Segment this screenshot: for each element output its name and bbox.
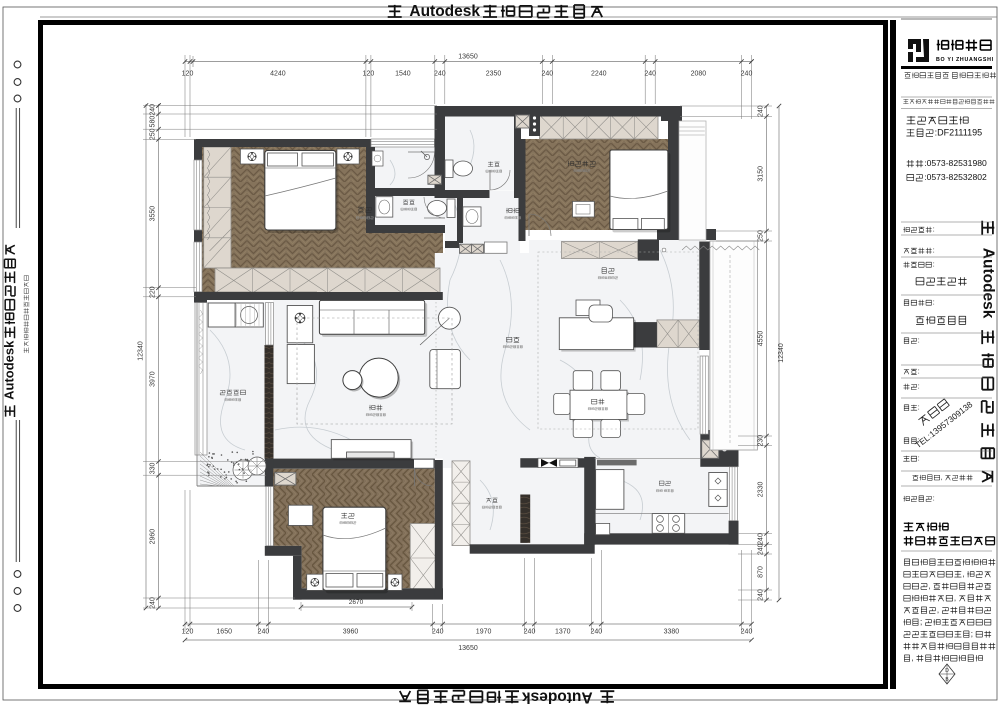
svg-text::: : (933, 227, 935, 234)
svg-text:240: 240 (590, 629, 602, 636)
svg-text:3970: 3970 (150, 371, 157, 387)
svg-text:3150: 3150 (758, 166, 765, 182)
svg-text::0573-82532802: :0573-82532802 (924, 172, 987, 182)
svg-text:120: 120 (363, 71, 375, 78)
svg-text:1370: 1370 (555, 629, 571, 636)
svg-text:240: 240 (758, 543, 765, 555)
svg-text:240: 240 (741, 71, 753, 78)
svg-text:12340: 12340 (138, 341, 145, 361)
svg-text:240: 240 (758, 533, 765, 545)
svg-text::: : (933, 300, 935, 307)
svg-text:240: 240 (434, 71, 446, 78)
svg-text:D: D (945, 668, 949, 674)
svg-text:BO YI ZHUANGSHI: BO YI ZHUANGSHI (936, 57, 994, 63)
svg-text::0573-82531980: :0573-82531980 (924, 158, 987, 168)
svg-text:3550: 3550 (150, 206, 157, 222)
svg-text:3380: 3380 (664, 629, 680, 636)
svg-text:2350: 2350 (486, 71, 502, 78)
svg-text:,: , (962, 570, 964, 579)
svg-text::: : (918, 438, 920, 445)
svg-text:220: 220 (150, 286, 157, 298)
svg-text:240: 240 (741, 629, 753, 636)
svg-text:13650: 13650 (458, 54, 478, 61)
svg-text:120: 120 (182, 629, 194, 636)
svg-text:2960: 2960 (150, 529, 157, 545)
svg-text:,: , (954, 594, 956, 603)
svg-text:2330: 2330 (758, 482, 765, 498)
svg-text:Autodesk: Autodesk (979, 248, 996, 319)
svg-text:4240: 4240 (270, 71, 286, 78)
svg-text:2080: 2080 (691, 71, 707, 78)
svg-text:2670: 2670 (349, 599, 364, 606)
svg-text:,: , (928, 582, 930, 591)
svg-text:,: , (937, 606, 939, 615)
svg-text:2240: 2240 (591, 71, 607, 78)
svg-text:240: 240 (150, 597, 157, 609)
svg-text::: : (933, 262, 935, 269)
svg-text::: : (918, 338, 920, 345)
svg-text:,: , (912, 654, 914, 663)
svg-text:240: 240 (758, 105, 765, 117)
svg-text:230: 230 (758, 435, 765, 447)
svg-text::: : (933, 248, 935, 255)
svg-text:13650: 13650 (458, 645, 478, 652)
svg-text:12340: 12340 (778, 343, 785, 363)
svg-text::: : (918, 456, 920, 463)
svg-text::: : (918, 384, 920, 391)
svg-text:4550: 4550 (758, 331, 765, 347)
svg-text:Autodesk: Autodesk (2, 340, 17, 400)
svg-text:Autodesk: Autodesk (522, 688, 593, 705)
svg-text:1970: 1970 (476, 629, 492, 636)
svg-text:240: 240 (541, 71, 553, 78)
svg-text:330: 330 (150, 462, 157, 474)
svg-text:250: 250 (150, 128, 157, 140)
svg-text:3960: 3960 (343, 629, 359, 636)
svg-text:240: 240 (758, 589, 765, 601)
svg-text::: : (918, 369, 920, 376)
svg-text:1650: 1650 (216, 629, 232, 636)
svg-text:;: ; (920, 618, 922, 627)
svg-text::: : (933, 496, 935, 503)
svg-text:Autodesk: Autodesk (409, 3, 480, 20)
svg-text:870: 870 (758, 566, 765, 578)
svg-text:240: 240 (644, 71, 656, 78)
svg-text::DF2111195: :DF2111195 (935, 127, 983, 137)
svg-text:1540: 1540 (395, 71, 411, 78)
svg-text:580: 580 (150, 116, 157, 128)
svg-text:240: 240 (258, 629, 270, 636)
svg-text:120: 120 (182, 71, 194, 78)
svg-text:;: ; (971, 630, 973, 639)
svg-text:240: 240 (432, 629, 444, 636)
svg-text:,: , (941, 475, 943, 482)
svg-text:240: 240 (524, 629, 536, 636)
svg-text:240: 240 (150, 104, 157, 116)
svg-text:250: 250 (758, 230, 765, 242)
svg-text::: : (918, 405, 920, 412)
